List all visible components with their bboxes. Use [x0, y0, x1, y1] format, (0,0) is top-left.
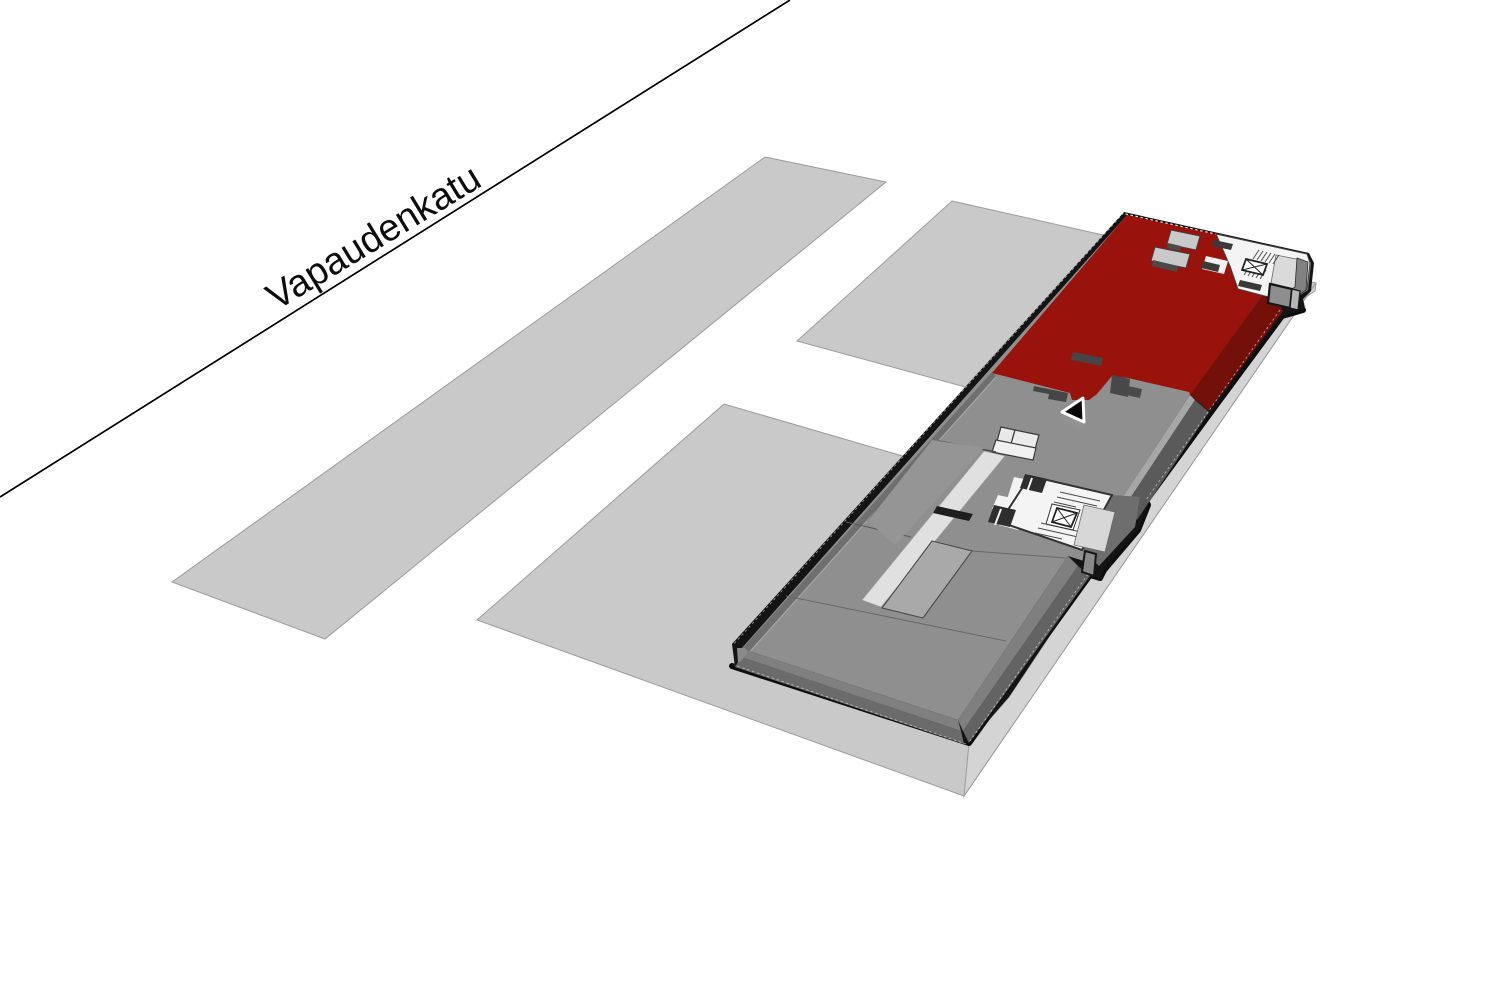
svg-text:Vapaudenkatu: Vapaudenkatu [259, 157, 488, 319]
